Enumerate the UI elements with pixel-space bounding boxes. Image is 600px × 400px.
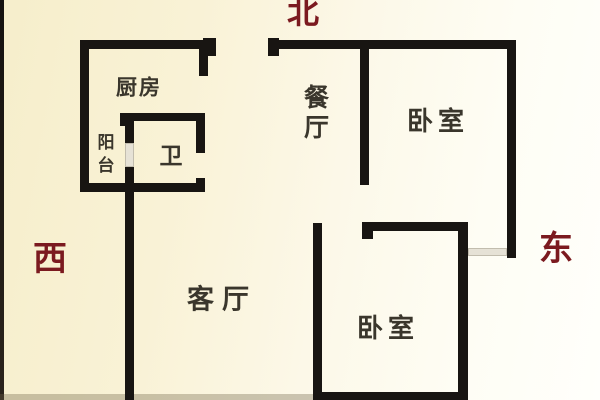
dining-bedroom-divider-wall	[360, 49, 369, 185]
living-room-left-wall	[125, 167, 134, 400]
north-outer-wall	[268, 40, 516, 49]
floor-plan: 北 西 东 厨房 阳台 卫 餐厅 卧室 客厅 卧室	[0, 0, 600, 400]
room-label-dining: 餐厅	[302, 84, 327, 144]
walls-layer	[0, 0, 600, 400]
bathroom-right-wall	[196, 127, 205, 153]
east-window	[468, 248, 507, 256]
kitchen-right-wall-upper	[199, 49, 208, 76]
bathroom-top-right-cap	[196, 113, 205, 127]
room-label-bedroom-north: 卧室	[407, 108, 469, 134]
compass-west-label: 西	[33, 242, 67, 276]
compass-east-label: 东	[539, 232, 573, 266]
bedroom-south-right-wall	[458, 222, 468, 400]
balcony-door-opening	[125, 143, 134, 167]
bathroom-bottom-wall	[125, 183, 205, 192]
bottom-edge-shadow	[0, 394, 313, 400]
compass-north-label: 北	[287, 0, 319, 28]
bathroom-top-wall	[120, 113, 205, 121]
bedroom-south-bottom-wall	[322, 392, 458, 400]
room-label-living: 客厅	[187, 287, 257, 314]
room-label-bedroom-south: 卧室	[357, 315, 419, 341]
bedroom-south-top-wall	[362, 222, 468, 231]
east-outer-wall	[507, 40, 516, 258]
living-room-east-wall	[313, 223, 322, 400]
west-outer-wall	[80, 40, 89, 190]
balcony-divider-wall-upper	[125, 121, 134, 143]
bedroom-south-top-left-nub	[362, 222, 373, 239]
kitchen-top-wall	[80, 40, 216, 49]
room-label-balcony: 阳台	[96, 133, 113, 179]
room-label-bathroom: 卫	[160, 145, 183, 168]
room-label-kitchen: 厨房	[116, 78, 162, 99]
